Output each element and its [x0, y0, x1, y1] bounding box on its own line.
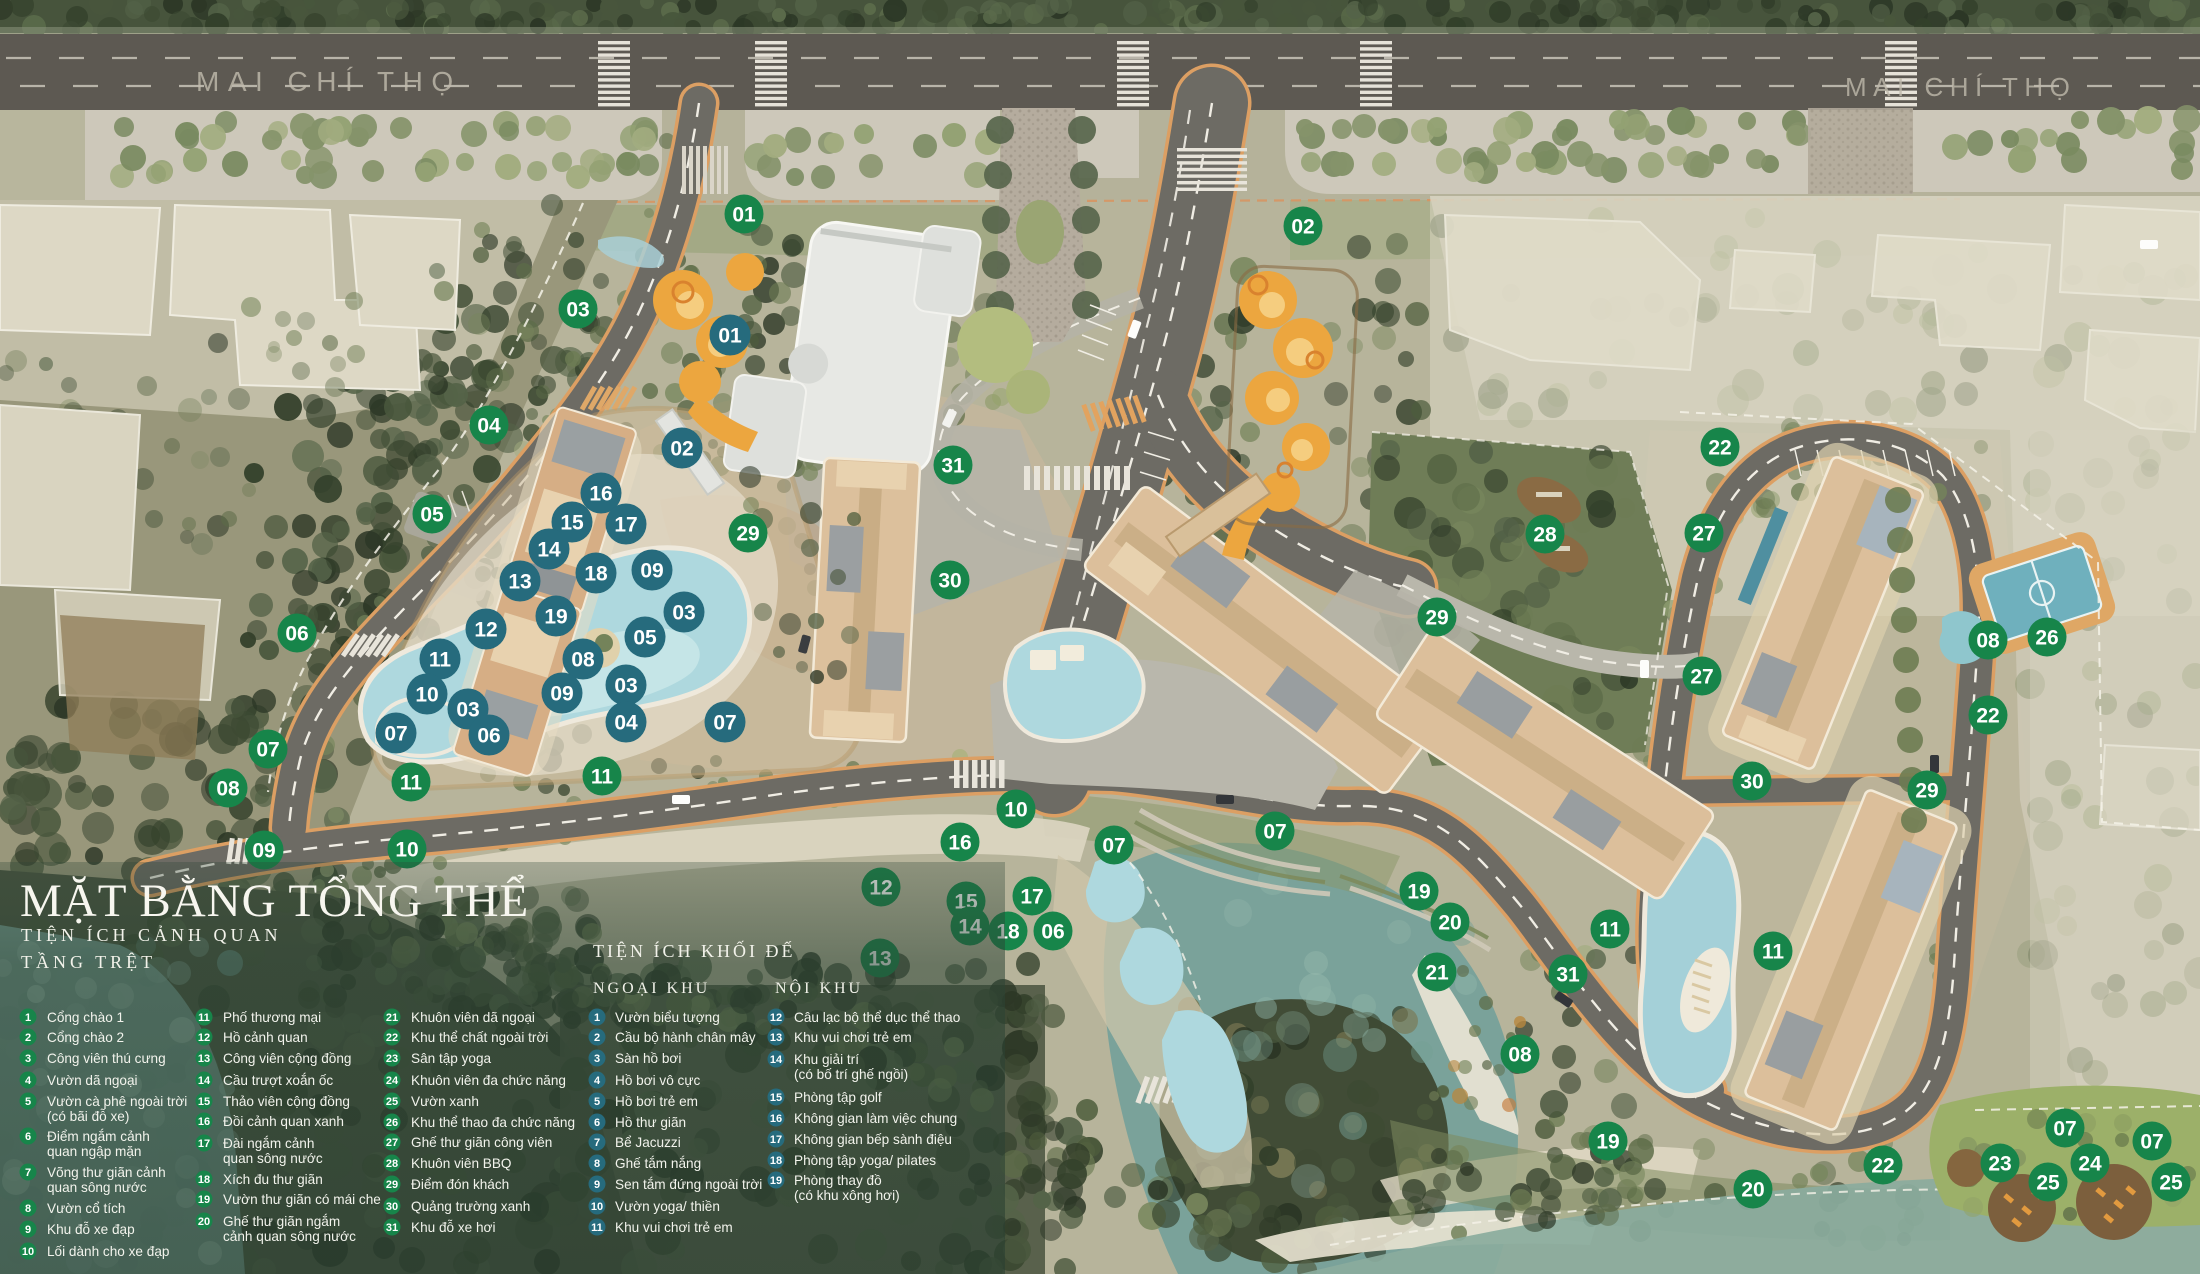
svg-text:07: 07	[713, 712, 736, 735]
svg-text:Võng thư giãn cảnh: Võng thư giãn cảnh	[47, 1165, 166, 1180]
svg-text:27: 27	[1692, 523, 1715, 546]
svg-text:23: 23	[386, 1053, 398, 1065]
svg-text:Phố thương mại: Phố thương mại	[223, 1010, 321, 1025]
svg-text:5: 5	[25, 1096, 31, 1108]
svg-text:quan sông nước: quan sông nước	[47, 1180, 147, 1195]
svg-text:Khu thể thao đa chức năng: Khu thể thao đa chức năng	[411, 1115, 575, 1130]
svg-text:21: 21	[386, 1012, 398, 1024]
svg-text:17: 17	[770, 1134, 782, 1146]
svg-text:Khuôn viên dã ngoại: Khuôn viên dã ngoại	[411, 1010, 535, 1025]
svg-text:Đồi cảnh quan xanh: Đồi cảnh quan xanh	[223, 1114, 344, 1129]
svg-text:4: 4	[25, 1075, 32, 1087]
svg-text:MAI CHÍ THỌ: MAI CHÍ THỌ	[1845, 72, 2076, 102]
svg-text:13: 13	[198, 1053, 210, 1065]
svg-text:06: 06	[285, 623, 308, 646]
svg-text:19: 19	[770, 1175, 782, 1187]
svg-text:Lối dành cho xe đạp: Lối dành cho xe đạp	[47, 1244, 169, 1259]
svg-text:11: 11	[1762, 941, 1785, 964]
svg-text:Vườn xanh: Vườn xanh	[411, 1094, 479, 1109]
svg-text:04: 04	[614, 712, 638, 735]
svg-text:05: 05	[633, 627, 657, 650]
svg-text:19: 19	[198, 1194, 210, 1206]
svg-text:Công viên thú cưng: Công viên thú cưng	[47, 1051, 166, 1066]
svg-text:Khuôn viên đa chức năng: Khuôn viên đa chức năng	[411, 1073, 566, 1088]
svg-text:22: 22	[1708, 437, 1731, 460]
svg-text:12: 12	[770, 1012, 782, 1024]
svg-text:2: 2	[25, 1032, 31, 1044]
svg-text:Xích đu thư giãn: Xích đu thư giãn	[223, 1172, 323, 1187]
svg-text:MAI CHÍ THỌ: MAI CHÍ THỌ	[196, 66, 462, 97]
svg-text:22: 22	[1976, 705, 1999, 728]
svg-text:28: 28	[1533, 524, 1557, 547]
svg-text:07: 07	[1263, 821, 1286, 844]
svg-text:Hồ bơi trẻ em: Hồ bơi trẻ em	[615, 1094, 698, 1109]
svg-text:03: 03	[672, 602, 695, 625]
svg-text:9: 9	[25, 1224, 31, 1236]
svg-text:13: 13	[508, 571, 531, 594]
svg-text:22: 22	[386, 1032, 398, 1044]
svg-text:quan ngập mặn: quan ngập mặn	[47, 1144, 141, 1159]
svg-text:06: 06	[1041, 921, 1064, 944]
svg-text:(có bố trí ghế ngồi): (có bố trí ghế ngồi)	[794, 1067, 908, 1082]
svg-text:14: 14	[537, 539, 561, 562]
svg-text:10: 10	[591, 1201, 603, 1213]
svg-text:Ghế tắm nắng: Ghế tắm nắng	[615, 1156, 701, 1171]
svg-text:Công viên cộng đồng: Công viên cộng đồng	[223, 1051, 351, 1066]
svg-text:08: 08	[1976, 630, 2000, 653]
svg-text:Phòng tập yoga/ pilates: Phòng tập yoga/ pilates	[794, 1153, 936, 1168]
svg-text:12: 12	[198, 1032, 210, 1044]
svg-text:(có khu xông hơi): (có khu xông hơi)	[794, 1188, 900, 1203]
svg-text:07: 07	[256, 739, 279, 762]
svg-text:Khu giải trí: Khu giải trí	[794, 1052, 859, 1067]
svg-text:29: 29	[1425, 607, 1448, 630]
svg-text:04: 04	[477, 415, 501, 438]
svg-text:03: 03	[456, 699, 479, 722]
svg-text:14: 14	[770, 1054, 783, 1066]
svg-text:Khu vui chơi trẻ em: Khu vui chơi trẻ em	[794, 1030, 912, 1045]
svg-text:24: 24	[386, 1075, 399, 1087]
svg-text:Phòng thay đồ: Phòng thay đồ	[794, 1173, 882, 1188]
svg-text:01: 01	[718, 325, 742, 348]
svg-text:7: 7	[25, 1167, 31, 1179]
svg-text:15: 15	[198, 1096, 210, 1108]
svg-text:Khu vui chơi trẻ em: Khu vui chơi trẻ em	[615, 1220, 733, 1235]
svg-text:18: 18	[770, 1155, 782, 1167]
svg-text:23: 23	[1988, 1153, 2011, 1176]
svg-text:15: 15	[770, 1092, 782, 1104]
svg-text:31: 31	[386, 1222, 398, 1234]
svg-text:08: 08	[216, 778, 240, 801]
svg-text:22: 22	[1871, 1155, 1894, 1178]
svg-text:TẦNG TRỆT: TẦNG TRỆT	[21, 951, 156, 972]
svg-text:09: 09	[550, 683, 573, 706]
svg-text:1: 1	[594, 1012, 600, 1024]
svg-text:TIỆN ÍCH KHỐI ĐẾ: TIỆN ÍCH KHỐI ĐẾ	[593, 940, 795, 961]
svg-text:25: 25	[2159, 1172, 2183, 1195]
svg-text:Sân tập yoga: Sân tập yoga	[411, 1051, 492, 1066]
svg-text:16: 16	[948, 832, 971, 855]
svg-text:09: 09	[252, 840, 275, 863]
svg-text:01: 01	[732, 204, 756, 227]
svg-text:13: 13	[770, 1032, 782, 1044]
svg-text:Thảo viên cộng đồng: Thảo viên cộng đồng	[223, 1094, 350, 1109]
svg-text:Sen tắm đứng ngoài trời: Sen tắm đứng ngoài trời	[615, 1177, 762, 1192]
svg-text:Vườn dã ngoại: Vườn dã ngoại	[47, 1073, 138, 1088]
svg-text:9: 9	[594, 1179, 600, 1191]
svg-text:19: 19	[1596, 1131, 1619, 1154]
svg-text:Vườn yoga/ thiền: Vườn yoga/ thiền	[615, 1199, 720, 1214]
svg-text:Khu đỗ xe hơi: Khu đỗ xe hơi	[411, 1220, 496, 1235]
svg-text:06: 06	[477, 725, 500, 748]
svg-text:NỘI KHU: NỘI KHU	[775, 978, 863, 997]
svg-text:3: 3	[25, 1053, 31, 1065]
svg-text:10: 10	[415, 684, 438, 707]
svg-text:29: 29	[736, 523, 759, 546]
svg-text:17: 17	[1020, 886, 1043, 909]
svg-text:03: 03	[614, 675, 637, 698]
svg-text:16: 16	[770, 1113, 782, 1125]
svg-text:14: 14	[198, 1075, 211, 1087]
svg-text:19: 19	[544, 606, 567, 629]
svg-text:02: 02	[1291, 216, 1314, 239]
svg-text:07: 07	[2053, 1118, 2076, 1141]
svg-text:31: 31	[1556, 964, 1580, 987]
svg-text:07: 07	[2140, 1131, 2163, 1154]
svg-text:Không gian bếp sành điệu: Không gian bếp sành điệu	[794, 1132, 952, 1147]
svg-text:15: 15	[560, 512, 584, 535]
svg-text:10: 10	[22, 1246, 34, 1258]
svg-text:Sàn hồ bơi: Sàn hồ bơi	[615, 1051, 681, 1066]
svg-text:4: 4	[594, 1075, 601, 1087]
svg-text:Cầu bộ hành chân mây: Cầu bộ hành chân mây	[615, 1030, 756, 1045]
svg-text:1: 1	[25, 1012, 31, 1024]
svg-text:02: 02	[670, 438, 693, 461]
svg-text:Điểm ngắm cảnh: Điểm ngắm cảnh	[47, 1129, 150, 1144]
svg-text:05: 05	[420, 504, 444, 527]
svg-text:08: 08	[1508, 1044, 1532, 1067]
svg-text:30: 30	[1740, 771, 1763, 794]
svg-text:2: 2	[594, 1032, 600, 1044]
svg-text:Khu đỗ xe đạp: Khu đỗ xe đạp	[47, 1222, 135, 1237]
svg-text:20: 20	[1741, 1179, 1764, 1202]
svg-text:Cổng chào 1: Cổng chào 1	[47, 1010, 124, 1025]
svg-text:Hồ thư giãn: Hồ thư giãn	[615, 1115, 686, 1130]
svg-text:MẶT BẰNG TỔNG THỂ: MẶT BẰNG TỔNG THỂ	[20, 873, 529, 927]
svg-text:17: 17	[198, 1138, 210, 1150]
svg-text:8: 8	[25, 1203, 31, 1215]
svg-text:07: 07	[1102, 835, 1125, 858]
svg-text:7: 7	[594, 1137, 600, 1149]
svg-text:6: 6	[594, 1117, 600, 1129]
svg-text:TIỆN ÍCH CẢNH QUAN: TIỆN ÍCH CẢNH QUAN	[21, 924, 281, 945]
svg-text:16: 16	[589, 483, 612, 506]
svg-text:Không gian làm việc chung: Không gian làm việc chung	[794, 1111, 957, 1126]
svg-text:11: 11	[1599, 919, 1622, 942]
svg-text:Điểm đón khách: Điểm đón khách	[411, 1177, 509, 1192]
svg-text:19: 19	[1407, 881, 1430, 904]
svg-text:28: 28	[386, 1158, 398, 1170]
svg-text:11: 11	[591, 1222, 603, 1234]
svg-text:18: 18	[584, 563, 608, 586]
svg-text:16: 16	[198, 1116, 210, 1128]
svg-text:24: 24	[2078, 1153, 2102, 1176]
svg-text:10: 10	[395, 839, 418, 862]
svg-text:Ghế thư giãn công viên: Ghế thư giãn công viên	[411, 1135, 552, 1150]
svg-text:25: 25	[2036, 1172, 2060, 1195]
svg-text:Hồ cảnh quan: Hồ cảnh quan	[223, 1030, 308, 1045]
svg-text:cảnh quan sông nước: cảnh quan sông nước	[223, 1229, 356, 1244]
svg-text:quan sông nước: quan sông nước	[223, 1151, 323, 1166]
svg-text:29: 29	[386, 1179, 398, 1191]
svg-text:Vườn cà phê ngoài trời: Vườn cà phê ngoài trời	[47, 1094, 187, 1109]
svg-text:11: 11	[198, 1012, 210, 1024]
svg-text:10: 10	[1004, 799, 1027, 822]
svg-text:6: 6	[25, 1131, 31, 1143]
svg-text:Bể Jacuzzi: Bể Jacuzzi	[615, 1135, 681, 1150]
svg-text:27: 27	[1690, 666, 1713, 689]
svg-text:Quảng trường xanh: Quảng trường xanh	[411, 1199, 530, 1214]
svg-text:Vườn biểu tượng: Vườn biểu tượng	[615, 1010, 720, 1025]
svg-text:17: 17	[614, 514, 637, 537]
svg-text:8: 8	[594, 1158, 600, 1170]
svg-text:08: 08	[571, 649, 595, 672]
svg-text:Hồ bơi vô cực: Hồ bơi vô cực	[615, 1073, 700, 1088]
svg-text:31: 31	[941, 455, 965, 478]
svg-text:12: 12	[474, 619, 497, 642]
svg-text:Câu lạc bộ thể dục thể thao: Câu lạc bộ thể dục thể thao	[794, 1010, 960, 1025]
svg-text:03: 03	[566, 299, 589, 322]
svg-text:Khu thể chất ngoài trời: Khu thể chất ngoài trời	[411, 1030, 548, 1045]
svg-text:29: 29	[1915, 780, 1938, 803]
svg-text:NGOẠI KHU: NGOẠI KHU	[593, 980, 710, 997]
svg-text:20: 20	[198, 1216, 210, 1228]
svg-text:11: 11	[400, 772, 423, 795]
svg-text:07: 07	[384, 723, 407, 746]
svg-text:26: 26	[2035, 627, 2058, 650]
svg-text:21: 21	[1425, 962, 1449, 985]
svg-text:Vườn cổ tích: Vườn cổ tích	[47, 1201, 125, 1216]
svg-text:Cổng chào 2: Cổng chào 2	[47, 1030, 124, 1045]
svg-text:30: 30	[938, 570, 961, 593]
svg-text:5: 5	[594, 1096, 600, 1108]
svg-text:27: 27	[386, 1137, 398, 1149]
svg-text:09: 09	[640, 560, 663, 583]
svg-text:26: 26	[386, 1117, 398, 1129]
svg-text:18: 18	[198, 1174, 210, 1186]
svg-text:(có bãi đỗ xe): (có bãi đỗ xe)	[47, 1109, 129, 1124]
svg-text:Vườn thư giãn có mái che: Vườn thư giãn có mái che	[223, 1192, 381, 1207]
svg-text:Cầu trượt xoắn ốc: Cầu trượt xoắn ốc	[223, 1073, 333, 1088]
svg-text:11: 11	[429, 649, 452, 672]
svg-text:11: 11	[591, 766, 614, 789]
svg-text:20: 20	[1438, 912, 1461, 935]
svg-text:Ghế thư giãn ngắm: Ghế thư giãn ngắm	[223, 1214, 340, 1229]
svg-text:3: 3	[594, 1053, 600, 1065]
svg-text:30: 30	[386, 1201, 398, 1213]
svg-text:Đài ngắm cảnh: Đài ngắm cảnh	[223, 1136, 314, 1151]
svg-text:25: 25	[386, 1096, 398, 1108]
svg-text:Phòng tập golf: Phòng tập golf	[794, 1090, 882, 1105]
svg-text:Khuôn viên BBQ: Khuôn viên BBQ	[411, 1156, 512, 1171]
